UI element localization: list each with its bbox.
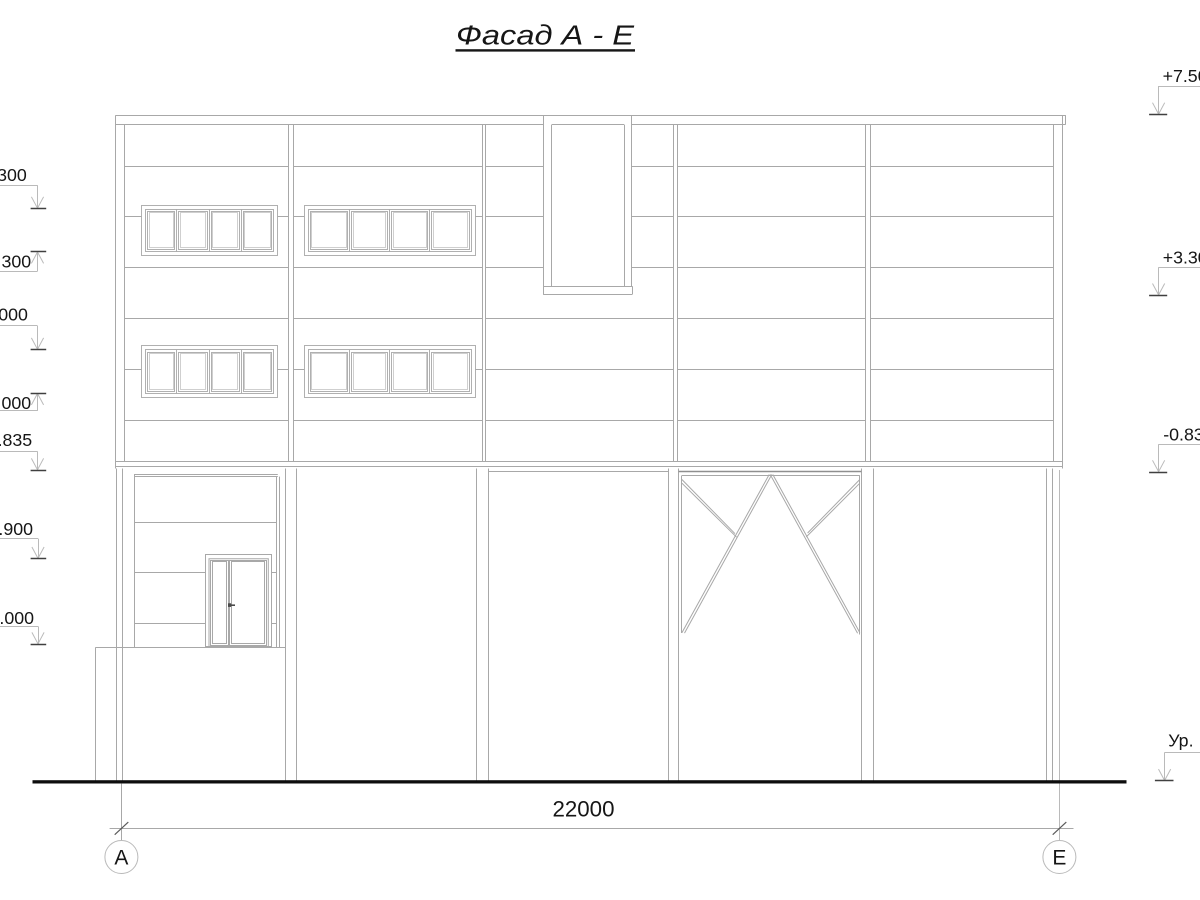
svg-text:+3.300: +3.300 [0,251,31,271]
svg-text:-0.835: -0.835 [1163,425,1200,445]
svg-text:-4.000: -4.000 [0,608,34,628]
svg-text:Ур.: Ур. [1168,731,1193,751]
svg-text:-1.835: -1.835 [0,430,32,450]
svg-text:Е: Е [1052,847,1066,870]
svg-text:+3.300: +3.300 [1163,247,1200,267]
svg-text:+6.300: +6.300 [0,165,27,185]
svg-text:Фасад А - Е: Фасад А - Е [456,20,635,51]
svg-text:А: А [114,847,128,870]
svg-text:-2.900: -2.900 [0,519,33,539]
svg-text:+7.500: +7.500 [1163,66,1200,86]
svg-text:22000: 22000 [552,797,614,822]
svg-text:0.000: 0.000 [0,305,28,325]
